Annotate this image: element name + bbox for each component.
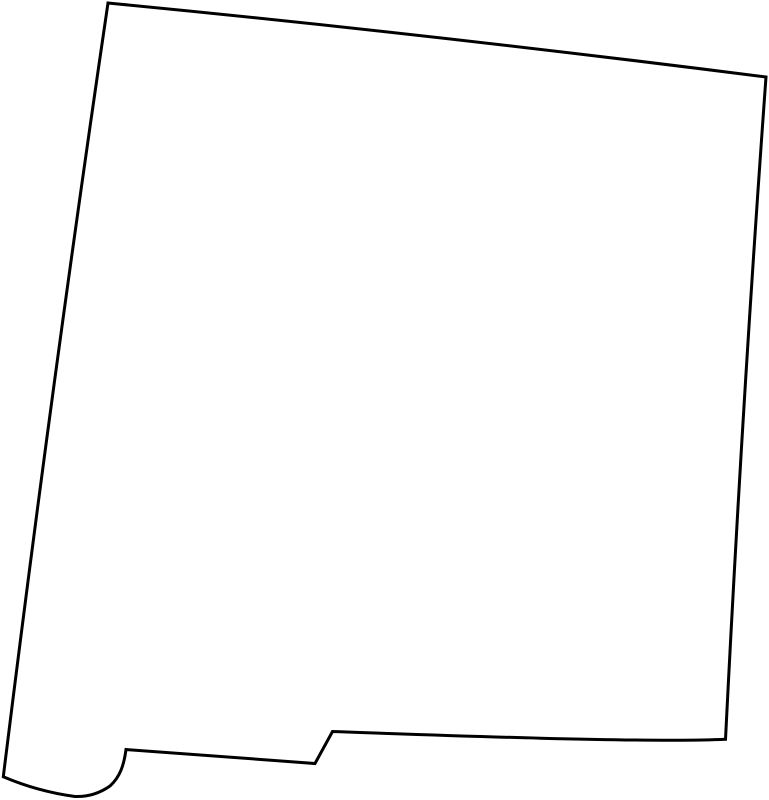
state-outline-map xyxy=(0,0,769,800)
map-canvas xyxy=(0,0,769,800)
new-mexico-outline xyxy=(3,3,766,797)
